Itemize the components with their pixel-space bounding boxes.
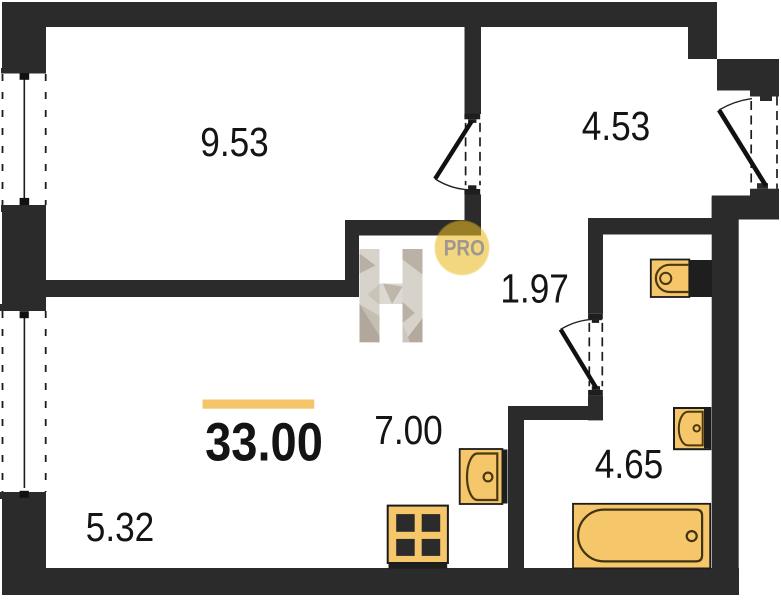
svg-text:4.53: 4.53 <box>582 105 651 150</box>
svg-text:PRO: PRO <box>444 236 485 261</box>
svg-text:9.53: 9.53 <box>200 121 269 166</box>
svg-text:7.00: 7.00 <box>374 409 443 454</box>
svg-text:33.00: 33.00 <box>205 412 323 473</box>
svg-text:5.32: 5.32 <box>86 506 155 551</box>
svg-text:4.65: 4.65 <box>595 443 664 488</box>
svg-text:1.97: 1.97 <box>500 267 569 312</box>
